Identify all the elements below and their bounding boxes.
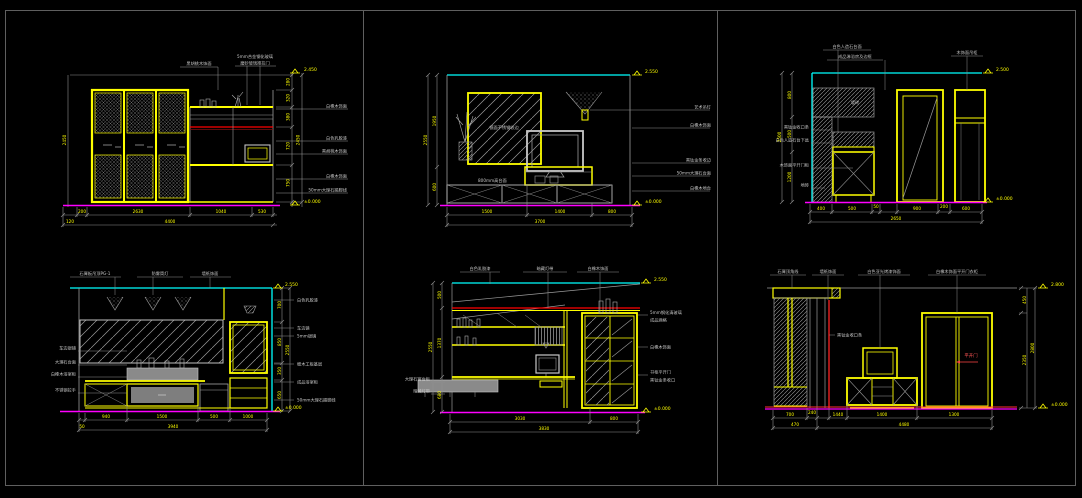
level-text: 2.800	[1051, 282, 1064, 288]
dim-text: 200	[940, 204, 948, 209]
dim-total: 2550	[423, 134, 428, 145]
dimension-lines	[431, 272, 648, 434]
dim-text: 800	[610, 416, 618, 421]
elevation-wardrobe-desk: 黑胡桃木饰面 5mm合金钢化玻璃 磨砂玻璃推拉门 白橡木饰面 白色乳胶漆 黑胡桃…	[30, 15, 365, 240]
level-text: ±0.000	[304, 199, 321, 205]
finish-label: 大理石台面	[55, 359, 76, 366]
elevation-study-bookcase: 白色乳胶漆 暗藏灯带 白橡木饰面 大理石窗台板 暗藏灯带 5mm钢化清玻璃 成品…	[405, 255, 720, 450]
dim-text: 500	[437, 291, 442, 299]
level-text: ±0.000	[285, 405, 302, 411]
wardrobe-handles	[103, 145, 185, 147]
dim-text: 1040	[216, 209, 227, 214]
curtain-box	[452, 308, 640, 311]
dim-text: 530	[258, 209, 266, 214]
dim-text: 650	[277, 391, 282, 399]
finish-label: 石膏顶角线	[778, 268, 800, 275]
wall-note: 墙砖	[851, 99, 859, 106]
dim-text: 940	[102, 414, 110, 419]
dim-text: 1500	[482, 209, 493, 214]
dim-total: 2800	[1030, 342, 1035, 353]
finish-label: 白色乳胶漆	[326, 135, 347, 142]
level-text: ±0.000	[996, 196, 1013, 202]
finish-label: 墙纸饰面	[202, 270, 219, 277]
finish-label: 白色乳胶漆	[297, 297, 318, 304]
finish-label: 50mm大理石踢脚线	[297, 397, 336, 404]
finish-label: 大理石窗台板	[405, 376, 431, 383]
dim-total: 3940	[168, 424, 179, 429]
dim-text: 500	[787, 130, 792, 138]
elevation-bedroom-wardrobe: 平开门 石膏顶角线 墙纸饰面 白色亚光烤漆饰面 白橡木饰面平开门衣柜 黑钛金收口…	[740, 258, 1080, 458]
dim-total: 2450	[296, 134, 301, 145]
dim-text: 350	[277, 367, 282, 375]
dim-text: 2350	[1022, 354, 1027, 365]
window-sill	[418, 380, 498, 397]
dim-text: 800	[787, 91, 792, 99]
dimension-lines	[780, 50, 984, 224]
pendant-lamp-icon	[566, 92, 602, 120]
side-cabinet	[955, 90, 985, 202]
finish-label: 暗藏灯带	[537, 265, 554, 272]
dim-total: 2550	[285, 344, 290, 355]
dim-text: 320	[286, 94, 291, 102]
downlight-icons	[107, 297, 191, 310]
dim-total: 4480	[899, 422, 910, 427]
finish-label: 黑钛金条收口	[650, 377, 675, 384]
dim-text: 1200	[787, 171, 792, 182]
finish-label: 白橡木饰面	[650, 344, 671, 351]
dim-text: 700	[786, 412, 794, 417]
dim-text: 50	[873, 204, 879, 209]
level-text: 2.550	[654, 277, 667, 283]
dim-total: 4400	[165, 219, 176, 224]
dim-text: 800	[608, 209, 616, 214]
dim-text: 50	[79, 424, 85, 429]
dim-text: 900	[913, 206, 921, 211]
tv-stand	[847, 348, 917, 408]
finish-label: 石膏板吊顶PG-1	[80, 270, 111, 277]
finish-label: 成品淋浴房及边框	[838, 53, 872, 60]
mirror-cabinet	[230, 322, 267, 373]
finish-label: 磨砂玻璃推拉门	[240, 60, 269, 67]
level-marker	[1038, 284, 1048, 408]
cad-drawing-canvas[interactable]: 黑胡桃木饰面 5mm合金钢化玻璃 磨砂玻璃推拉门 白橡木饰面 白色乳胶漆 黑胡桃…	[0, 0, 1082, 498]
door-type-label: 平开门	[964, 352, 977, 359]
elevation-vanity-mirror: 石膏板吊顶PG-1 防雾筒灯 墙纸饰面 车边银镜 大理石台面 白橡木浴室柜 不锈…	[25, 260, 355, 445]
dim-text: 380	[286, 113, 291, 121]
dim-text: 600	[432, 183, 437, 191]
finish-label: 防雾筒灯	[152, 270, 170, 277]
dim-text: 280	[286, 78, 291, 86]
level-text: 2.550	[285, 282, 298, 288]
media-console	[525, 167, 592, 185]
finish-label: 白橡木饰面平开门衣柜	[936, 268, 978, 275]
finish-label: 白橡木饰面	[690, 122, 711, 129]
dim-text: 450	[1022, 296, 1027, 304]
finish-label: 成品酒格	[650, 317, 668, 324]
finish-label: 白色乳胶漆	[470, 265, 491, 272]
mirror-note: 镜面不锈钢收边	[489, 124, 519, 131]
dim-text: 500	[210, 414, 218, 419]
wall-lamp-icon	[244, 306, 256, 313]
dim-text: 400	[817, 206, 825, 211]
dim-text: 720	[286, 142, 291, 150]
finish-label: 50mm大理石台面	[677, 170, 711, 177]
shower-door	[897, 90, 943, 202]
finish-label: 黑钛金收口条	[784, 124, 810, 131]
dim-text: 600	[962, 206, 970, 211]
finish-label: 地砖	[801, 182, 809, 189]
dim-text: 2630	[133, 209, 144, 214]
finish-label: 5mm合金钢化玻璃	[237, 53, 273, 60]
finish-label: 车边银镜	[59, 345, 77, 352]
finish-label: 黑钛金收口条	[837, 332, 863, 339]
finish-label: 细木工板基层	[297, 361, 322, 368]
right-wardrobe	[922, 313, 992, 408]
dim-total: 2650	[891, 216, 902, 221]
finish-label: 木饰面平开门柜	[780, 162, 809, 169]
finish-label: 黑胡桃木饰面	[186, 60, 211, 67]
finish-label: 白橡木地台	[690, 185, 711, 192]
dim-text: 1500	[157, 414, 168, 419]
cabinet-note: 800mm高台面	[478, 177, 507, 184]
finish-label: 5mm银镜	[297, 333, 317, 340]
dim-text: 240	[808, 410, 816, 415]
level-text: 2.450	[304, 67, 317, 73]
finish-label: 白色亚光烤漆饰面	[867, 268, 901, 275]
dim-text: 1950	[432, 115, 437, 126]
finish-label: 黑钛金条收边	[686, 157, 712, 164]
finish-label: 书柜平开门	[650, 369, 671, 376]
finish-label: 50mm大理石踢脚线	[308, 187, 347, 194]
finish-label: 车边镜	[297, 325, 310, 332]
finish-label: 白橡木饰面	[326, 103, 347, 110]
vanity-cabinet	[833, 132, 874, 202]
pelmet	[773, 288, 840, 298]
dim-text: 1300	[949, 412, 960, 417]
elevation-bathroom-wall: 墙砖 白色人造石台面 成品淋	[735, 20, 1080, 235]
dim-text: 200	[78, 209, 86, 214]
dim-text: 680	[437, 391, 442, 399]
level-text: ±0.000	[654, 406, 671, 412]
level-text: ±0.000	[1051, 402, 1068, 408]
dim-text: 3030	[515, 416, 526, 421]
finish-label: 白橡木饰面	[588, 265, 609, 272]
display-shelves	[452, 313, 565, 345]
finish-label: 白橡木饰面	[326, 173, 347, 180]
finish-label: 暗藏灯带	[413, 388, 430, 395]
dim-total: 3830	[539, 426, 550, 431]
bottle-icons	[457, 318, 480, 345]
dim-text: 750	[286, 179, 291, 187]
dim-text: 1370	[437, 337, 442, 348]
level-marker	[632, 71, 642, 205]
finish-label: 艺术吊灯	[694, 104, 712, 111]
base-cabinet	[447, 185, 612, 203]
dim-text: 1440	[833, 412, 844, 417]
dim-text: 470	[791, 422, 799, 427]
dim-total: 2500	[777, 131, 782, 142]
finish-label: 白橡木浴室柜	[51, 371, 76, 378]
finish-label: 黑胡桃木饰面	[322, 148, 347, 155]
wardrobe	[92, 90, 188, 202]
left-wardrobe	[774, 298, 807, 406]
finish-label: 白色人造石台面	[832, 43, 861, 50]
dim-total: 3700	[535, 219, 546, 224]
finish-label: 成品浴室柜	[297, 379, 318, 386]
finish-label: 不锈钢拉手	[55, 387, 76, 394]
finish-label: 木饰面吊柜	[957, 49, 978, 56]
dim-total: 2450	[62, 134, 67, 145]
dim-text: 500	[848, 206, 856, 211]
dim-text: 850	[277, 338, 282, 346]
bookcase	[582, 299, 637, 408]
finish-label: 墙纸饰面	[820, 268, 837, 275]
level-text: ±0.000	[645, 199, 662, 205]
dim-text: 1400	[555, 209, 566, 214]
dim-text: 700	[277, 301, 282, 309]
door-jamb	[807, 298, 829, 408]
elevation-tv-wall: 镜面不锈钢收边 800mm高台面	[400, 30, 715, 235]
plant-icon	[200, 92, 243, 107]
dim-total: 2550	[428, 341, 433, 352]
level-text: 2.500	[996, 67, 1009, 73]
dim-text: 1400	[877, 412, 888, 417]
dim-text: 120	[66, 219, 74, 224]
level-text: 2.550	[645, 69, 658, 75]
dim-text: 1000	[243, 414, 254, 419]
finish-label: 5mm钢化清玻璃	[650, 309, 682, 316]
